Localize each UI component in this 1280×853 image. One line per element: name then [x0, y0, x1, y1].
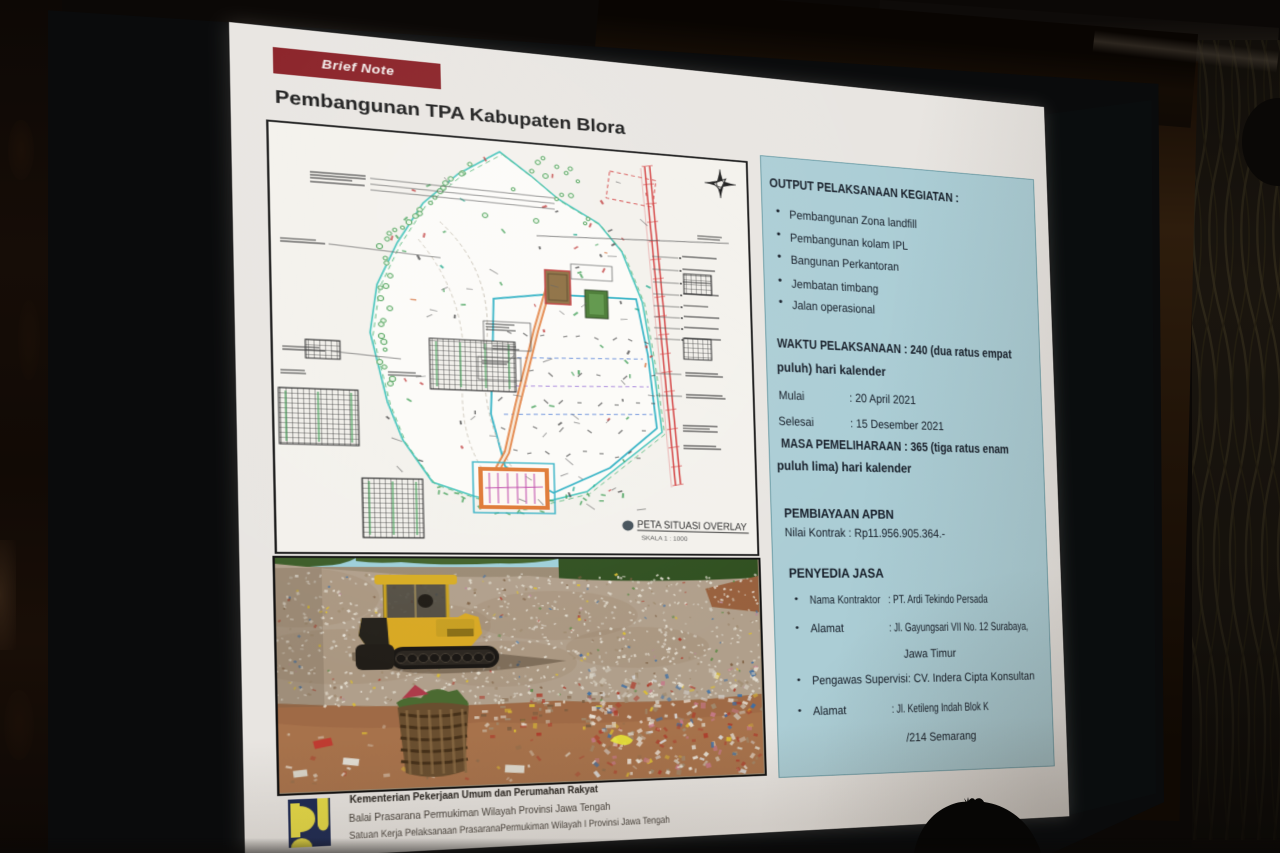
svg-text:SKALA 1 : 1000: SKALA 1 : 1000 [641, 534, 687, 543]
